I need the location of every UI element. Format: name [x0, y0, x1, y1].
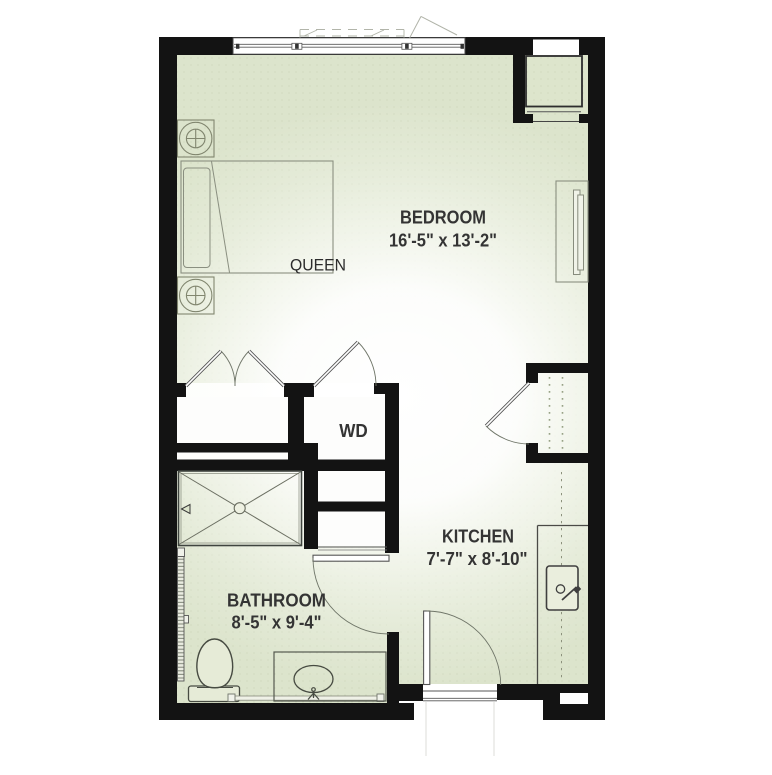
svg-text:BEDROOM: BEDROOM	[400, 208, 486, 228]
svg-text:7'-7" x 8'-10": 7'-7" x 8'-10"	[427, 549, 528, 569]
svg-text:QUEEN: QUEEN	[290, 257, 346, 275]
svg-text:8'-5" x 9'-4": 8'-5" x 9'-4"	[232, 613, 322, 633]
svg-text:16'-5" x 13'-2": 16'-5" x 13'-2"	[389, 231, 497, 251]
svg-text:WD: WD	[339, 421, 368, 441]
svg-text:KITCHEN: KITCHEN	[442, 527, 514, 547]
svg-text:BATHROOM: BATHROOM	[227, 591, 326, 611]
